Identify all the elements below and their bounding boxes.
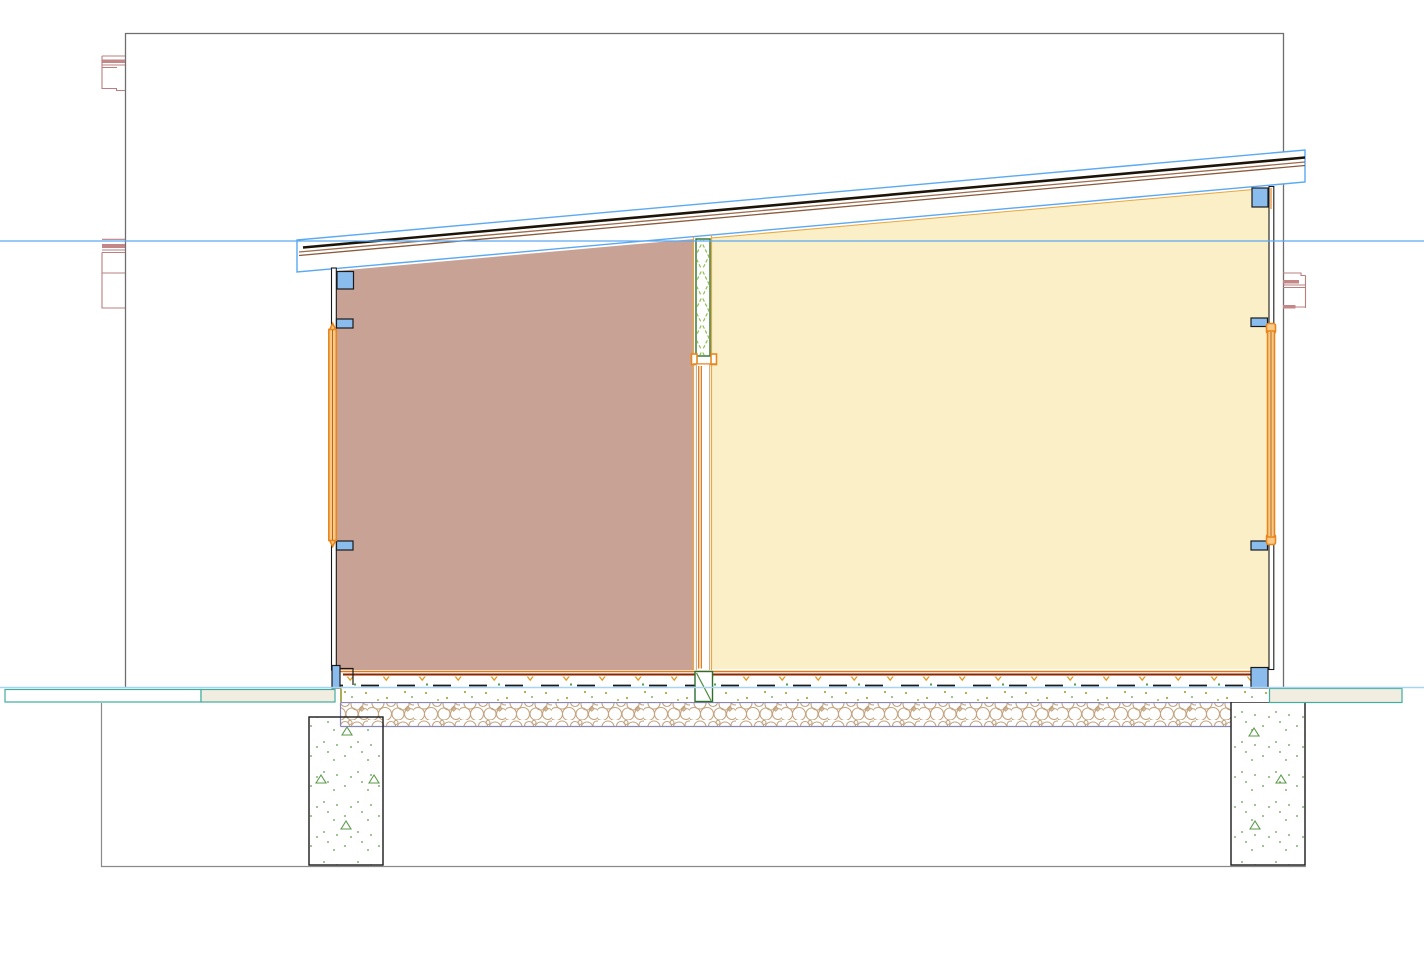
- footing-right[interactable]: [1231, 702, 1305, 865]
- terrain-band-left-inner[interactable]: [201, 690, 335, 703]
- blocking-block: [1251, 318, 1268, 327]
- drawing-canvas: [0, 0, 1424, 959]
- terrain-band-left-outer[interactable]: [5, 690, 201, 703]
- floor-screed-hatch: [340, 677, 1251, 687]
- blocking-block: [1251, 541, 1268, 550]
- right-window-frame: [1267, 324, 1276, 545]
- sill-block: [1251, 668, 1268, 689]
- section-drawing: [0, 0, 1424, 959]
- insulation-crosshatch: [697, 240, 709, 355]
- terrain-band-right[interactable]: [1270, 689, 1403, 703]
- footing-left[interactable]: [309, 717, 383, 865]
- floor-bedding-dots: [336, 689, 1270, 702]
- room-right-fill[interactable]: [711, 188, 1270, 670]
- gravel-bed[interactable]: [341, 703, 1232, 727]
- sill-block: [332, 666, 340, 689]
- left-window-frame: [329, 324, 337, 547]
- room-left-fill[interactable]: [336, 239, 694, 670]
- blocking-block: [337, 541, 354, 550]
- door-threshold: [695, 672, 713, 702]
- blocking-block: [337, 319, 354, 328]
- blocking-block: [337, 272, 354, 290]
- floor-slab[interactable]: [336, 670, 1270, 702]
- blocking-block: [1252, 188, 1268, 207]
